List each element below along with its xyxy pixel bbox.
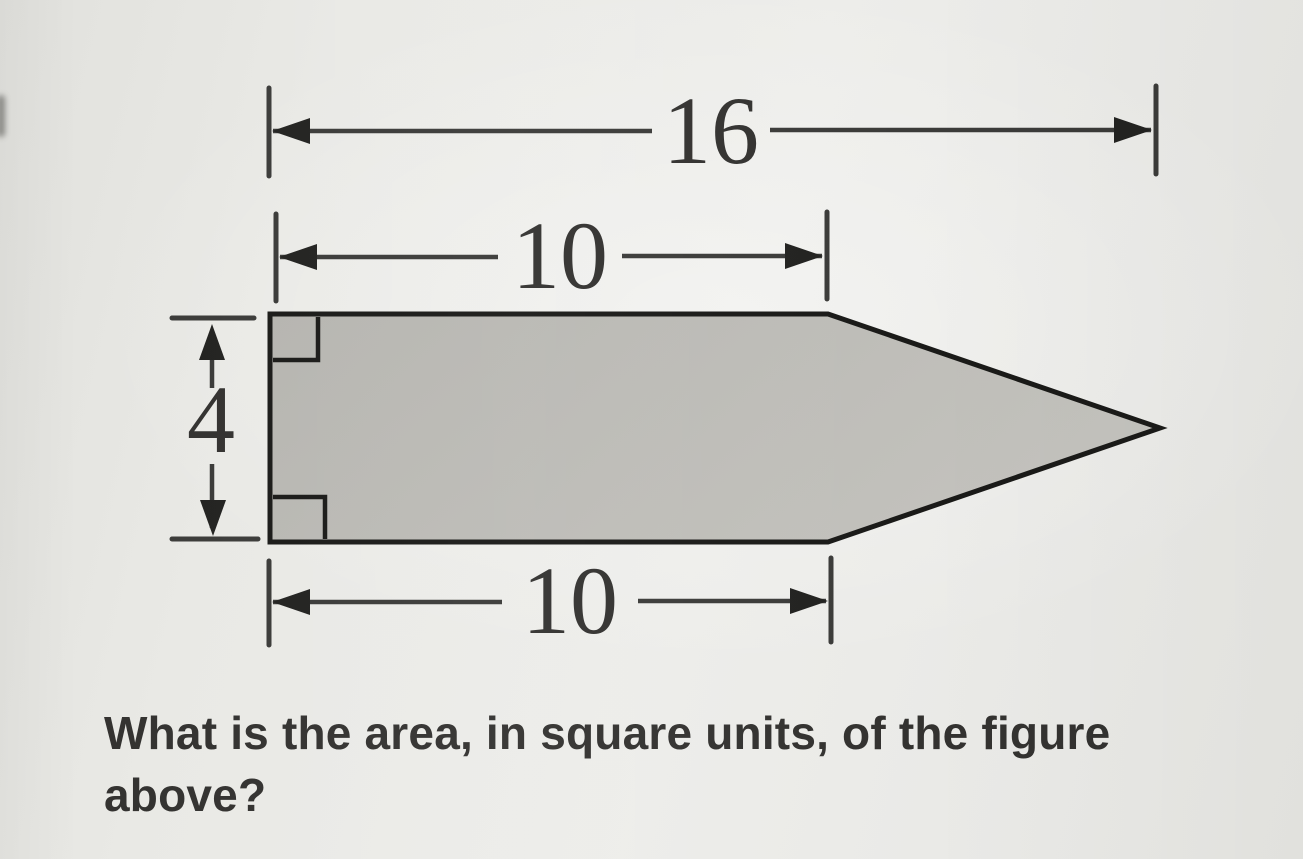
arrowhead-left <box>272 118 310 144</box>
dimension-10-top: 10 <box>276 202 827 309</box>
dimension-10-bottom: 10 <box>269 547 831 654</box>
dimension-label-top: 16 <box>663 77 759 184</box>
arrowhead-up <box>199 324 225 360</box>
arrowhead-down <box>200 500 226 536</box>
dimension-16: 16 <box>269 77 1156 184</box>
arrowhead-right <box>785 243 823 269</box>
dimension-label-bottom: 10 <box>522 547 618 654</box>
arrowhead-right <box>1114 117 1152 143</box>
dimension-4: 4 <box>172 318 258 539</box>
arrowhead-left <box>272 589 310 615</box>
pentagon-shape <box>270 314 1160 542</box>
question-line: What is the area, in square units, of th… <box>104 702 1284 764</box>
arrowhead-right <box>790 588 828 614</box>
question-line: above? <box>104 764 1284 826</box>
geometry-figure: 16 10 4 <box>0 0 1303 690</box>
dimension-label-middle: 10 <box>512 202 608 309</box>
question-text: What is the area, in square units, of th… <box>104 702 1284 826</box>
arrowhead-left <box>279 244 317 270</box>
worksheet-page: 16 10 4 <box>0 0 1303 859</box>
dimension-label-left: 4 <box>187 366 235 473</box>
